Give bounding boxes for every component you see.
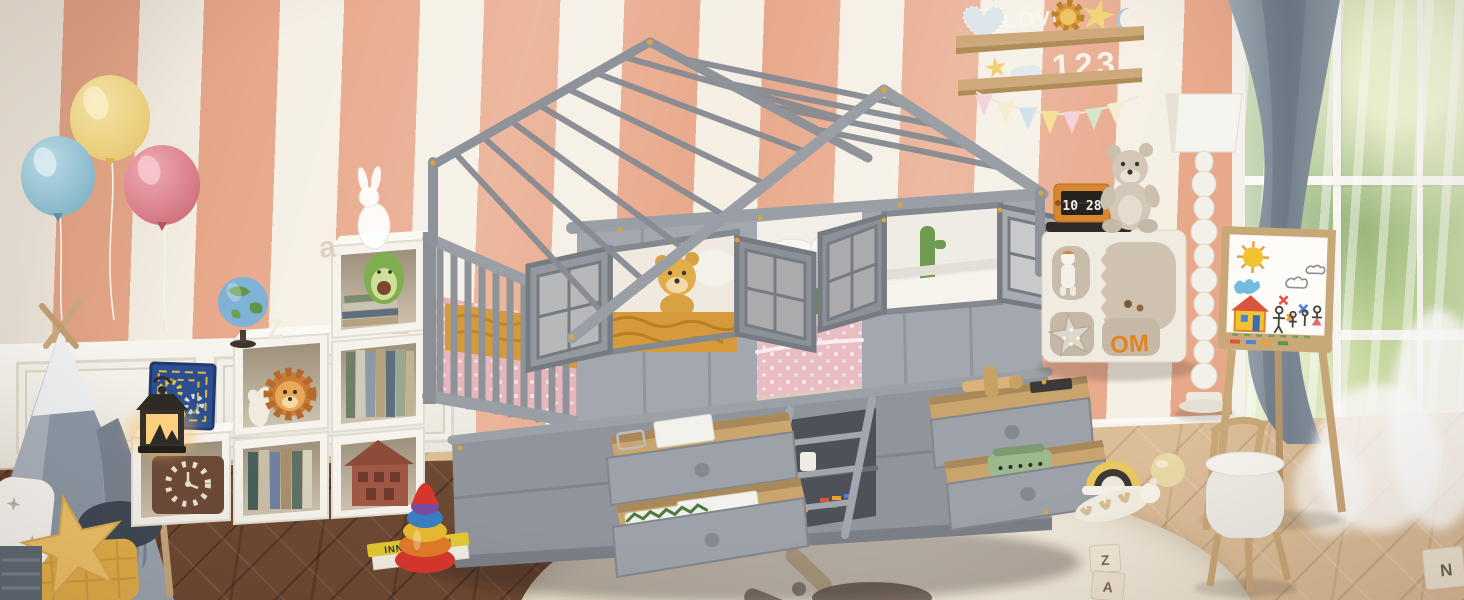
- drawer-knob: [1005, 425, 1020, 439]
- left-window-right-shutter: [737, 238, 814, 350]
- avocado-plush: [364, 252, 404, 304]
- balloons: [21, 75, 200, 348]
- drawer-knob: [1021, 487, 1036, 501]
- kids-bedroom-scene: LOVE 123: [0, 0, 1464, 600]
- wire-bunny-lamp: [356, 165, 390, 249]
- block-letter: N: [1439, 560, 1453, 580]
- bunting-flags: [975, 92, 1138, 134]
- letter-blocks-corner: N: [1422, 546, 1464, 590]
- cutout-arch: [1100, 242, 1176, 330]
- drawer-knob: [705, 533, 720, 547]
- flip-clock-time: 10 28: [1062, 199, 1101, 214]
- cubby-letters: OM: [1110, 330, 1150, 359]
- letter-z-decor: Z: [266, 313, 284, 344]
- balloon-pink: [124, 145, 200, 231]
- lamp-bobbin-pole: [1191, 151, 1217, 389]
- acorn: [1124, 300, 1132, 308]
- back-gable-right-beam: [650, 42, 868, 158]
- toy-cup: [800, 452, 816, 471]
- gray-slat-box: [0, 546, 42, 600]
- star-decor: [984, 55, 1008, 78]
- corner-post: [423, 232, 436, 404]
- wall-shelf-123: 123: [958, 44, 1142, 96]
- block-letter: Z: [1100, 552, 1110, 569]
- right-window-scene: [884, 205, 1000, 312]
- organic-cutout-shelf: OM: [1042, 222, 1186, 362]
- letter-blocks-rug: Z A: [1089, 544, 1125, 600]
- stool-leg: [1248, 538, 1250, 592]
- right-window-left-shutter: [820, 216, 884, 330]
- balloon-blue: [21, 136, 95, 222]
- letter-a-decor: a: [317, 230, 337, 265]
- stool-leg: [1210, 534, 1218, 586]
- acorn: [1137, 305, 1144, 312]
- scene-art: LOVE 123: [0, 0, 1464, 600]
- stool-leg: [1276, 532, 1288, 580]
- lion-plush: [1055, 3, 1081, 29]
- vintage-clock: [152, 456, 224, 514]
- front-gable-right-beam: [884, 90, 1043, 194]
- drawer-knob: [695, 463, 710, 477]
- block-letter: A: [1102, 579, 1113, 596]
- books-vertical-row: [346, 349, 414, 418]
